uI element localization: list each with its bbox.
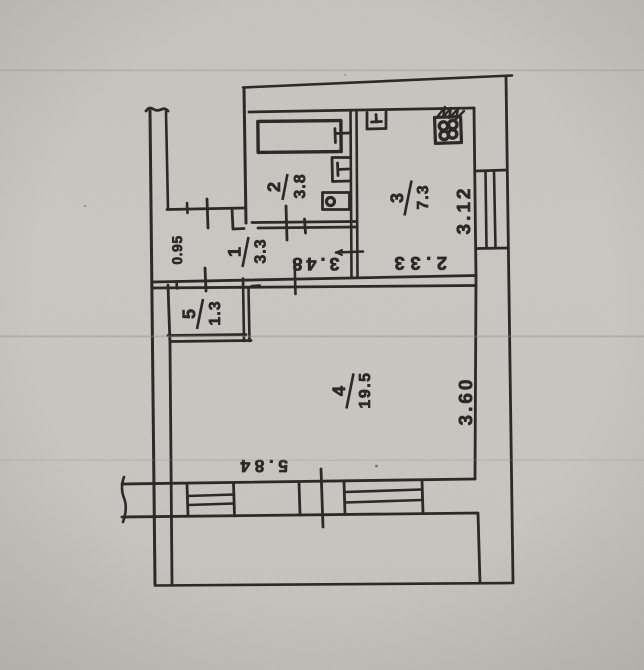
svg-text:3.48: 3.48 [288, 254, 339, 274]
svg-text:7.3: 7.3 [415, 184, 432, 209]
svg-text:2: 2 [264, 182, 284, 192]
svg-text:2.33: 2.33 [389, 253, 447, 274]
svg-text:5: 5 [179, 309, 199, 319]
svg-text:0.95: 0.95 [169, 235, 185, 264]
svg-text:3.12: 3.12 [454, 186, 475, 235]
svg-text:1.3: 1.3 [207, 300, 224, 325]
svg-text:3.3: 3.3 [253, 238, 270, 263]
svg-text:3: 3 [387, 193, 407, 203]
svg-text:19.5: 19.5 [357, 371, 374, 408]
svg-text:4: 4 [329, 386, 349, 396]
svg-text:3.60: 3.60 [456, 377, 477, 426]
svg-text:5.84: 5.84 [236, 456, 288, 476]
svg-text:3.8: 3.8 [292, 173, 309, 198]
svg-text:1: 1 [225, 247, 245, 257]
